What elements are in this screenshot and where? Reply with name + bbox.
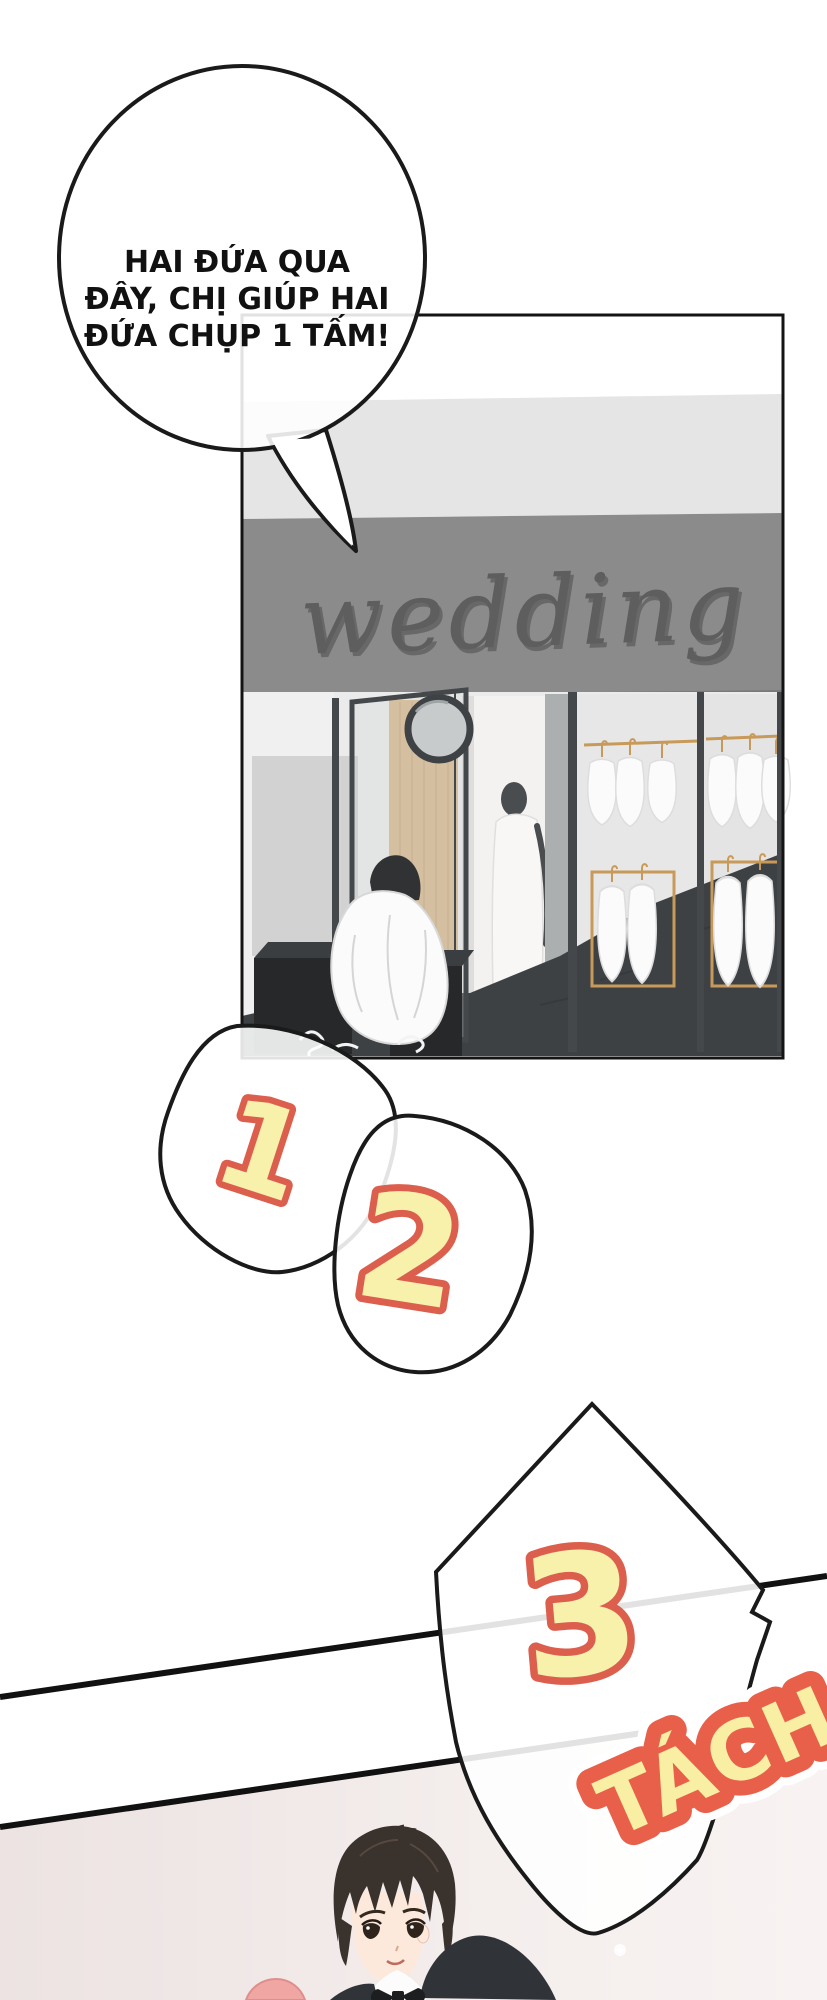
frame-bar: [568, 692, 577, 1052]
round-door-window: [408, 698, 470, 760]
speech-text-line1: HAI ĐỨA QUA: [124, 243, 351, 280]
speech-text-line3: ĐỨA CHỤP 1 TẤM!: [84, 313, 390, 354]
sparkle-core: [618, 1948, 623, 1953]
comic-art: wedding wedding: [0, 0, 827, 2000]
countdown-paper-2: 2: [334, 1116, 531, 1373]
speech-text-line2: ĐÂY, CHỊ GIÚP HAI: [85, 280, 390, 317]
wedding-sign-text: wedding: [298, 548, 750, 677]
countdown-number-3: 3: [513, 1513, 647, 1718]
frame-bar: [697, 692, 704, 1052]
shop-interior: [242, 690, 790, 1060]
mannequin-head: [501, 782, 527, 816]
comic-page: wedding wedding: [0, 0, 827, 2000]
